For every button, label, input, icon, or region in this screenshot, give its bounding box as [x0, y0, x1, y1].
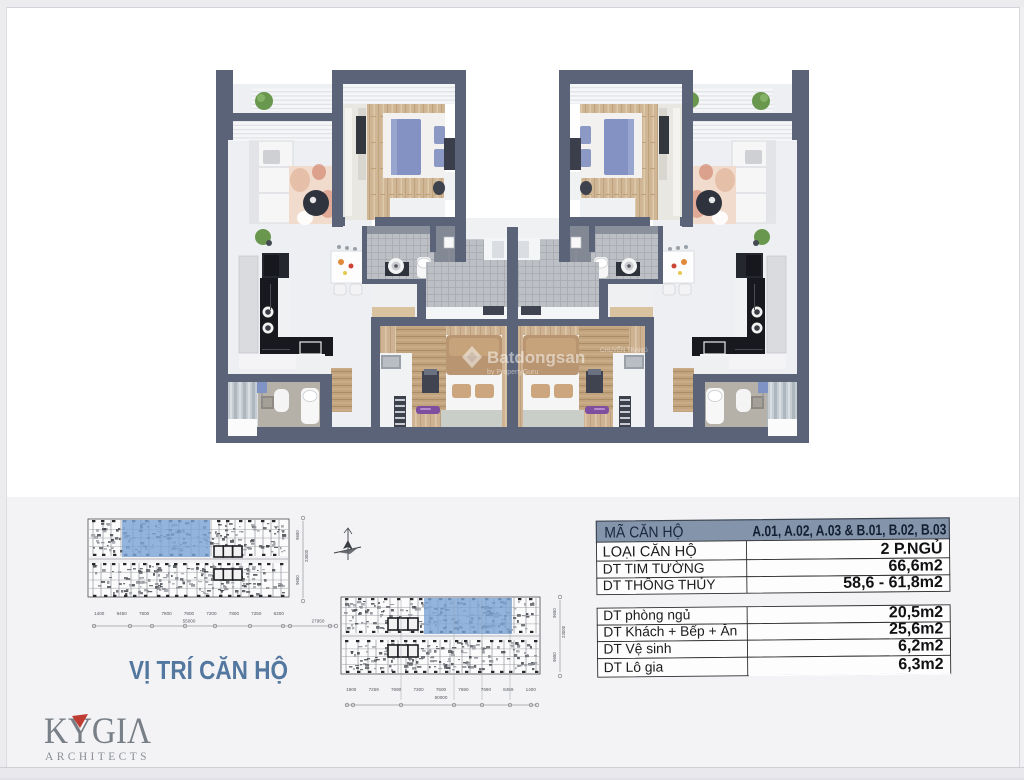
svg-text:20,5m2: 20,5m2: [889, 604, 944, 622]
svg-text:9650: 9650: [295, 575, 300, 585]
svg-text:2 P.NGỦ: 2 P.NGỦ: [880, 538, 942, 558]
svg-text:7690: 7690: [391, 687, 402, 692]
svg-text:DT phòng ngủ: DT phòng ngủ: [603, 607, 690, 623]
svg-text:1400: 1400: [94, 611, 105, 616]
svg-text:Batdongsan: Batdongsan: [487, 348, 585, 367]
svg-text:DT THÔNG THỦY: DT THÔNG THỦY: [603, 575, 716, 593]
svg-text:66,6m2: 66,6m2: [888, 557, 943, 575]
svg-text:6,3m2: 6,3m2: [898, 656, 944, 673]
svg-text:9650: 9650: [552, 608, 557, 618]
svg-text:7690: 7690: [458, 687, 469, 692]
svg-text:DT Khách + Bếp + Ăn: DT Khách + Bếp + Ăn: [603, 622, 737, 639]
svg-text:50000: 50000: [435, 695, 448, 700]
svg-text:9650: 9650: [295, 530, 300, 540]
svg-text:27950: 27950: [312, 619, 325, 624]
svg-text:7800: 7800: [229, 611, 240, 616]
svg-text:8459: 8459: [503, 687, 514, 692]
svg-text:7259: 7259: [369, 687, 380, 692]
svg-text:ARCHITECTS: ARCHITECTS: [45, 751, 150, 763]
svg-text:6,2m2: 6,2m2: [898, 637, 944, 654]
svg-text:7300: 7300: [413, 687, 424, 692]
svg-text:23000: 23000: [304, 549, 309, 562]
svg-text:VỊ TRÍ CĂN HỘ: VỊ TRÍ CĂN HỘ: [129, 655, 288, 685]
svg-text:by PropertyGuru: by PropertyGuru: [487, 369, 538, 376]
svg-text:1900: 1900: [346, 687, 357, 692]
svg-text:7690: 7690: [481, 687, 492, 692]
svg-text:25,6m2: 25,6m2: [889, 620, 944, 638]
svg-text:LOẠI CĂN HỘ: LOẠI CĂN HỘ: [602, 543, 696, 561]
svg-text:6200: 6200: [274, 611, 285, 616]
svg-text:9450: 9450: [117, 611, 128, 616]
svg-text:55000: 55000: [183, 619, 196, 624]
svg-text:7600: 7600: [436, 687, 447, 692]
svg-text:DT Lô gia: DT Lô gia: [604, 660, 664, 676]
svg-text:MÃ CĂN HỘ: MÃ CĂN HỘ: [604, 524, 683, 542]
svg-text:7250: 7250: [251, 611, 262, 616]
svg-text:7800: 7800: [184, 611, 195, 616]
svg-text:KYGIΛ: KYGIΛ: [44, 711, 151, 752]
svg-text:1400: 1400: [526, 687, 537, 692]
svg-text:58,6 - 61,8m2: 58,6 - 61,8m2: [843, 574, 943, 592]
svg-text:A.01, A.02, A.03 & B.01, B.02,: A.01, A.02, A.03 & B.01, B.02, B.03: [752, 521, 946, 540]
svg-text:23000: 23000: [561, 625, 566, 638]
svg-text:7800: 7800: [161, 611, 172, 616]
svg-text:DT Vệ sinh: DT Vệ sinh: [603, 641, 671, 657]
svg-text:7800: 7800: [139, 611, 150, 616]
svg-text:9650: 9650: [552, 652, 557, 662]
svg-text:DT TIM TƯỜNG: DT TIM TƯỜNG: [603, 560, 705, 577]
svg-text:7200: 7200: [206, 611, 217, 616]
svg-text:CHUYÊN TRANG: CHUYÊN TRANG: [600, 346, 648, 354]
